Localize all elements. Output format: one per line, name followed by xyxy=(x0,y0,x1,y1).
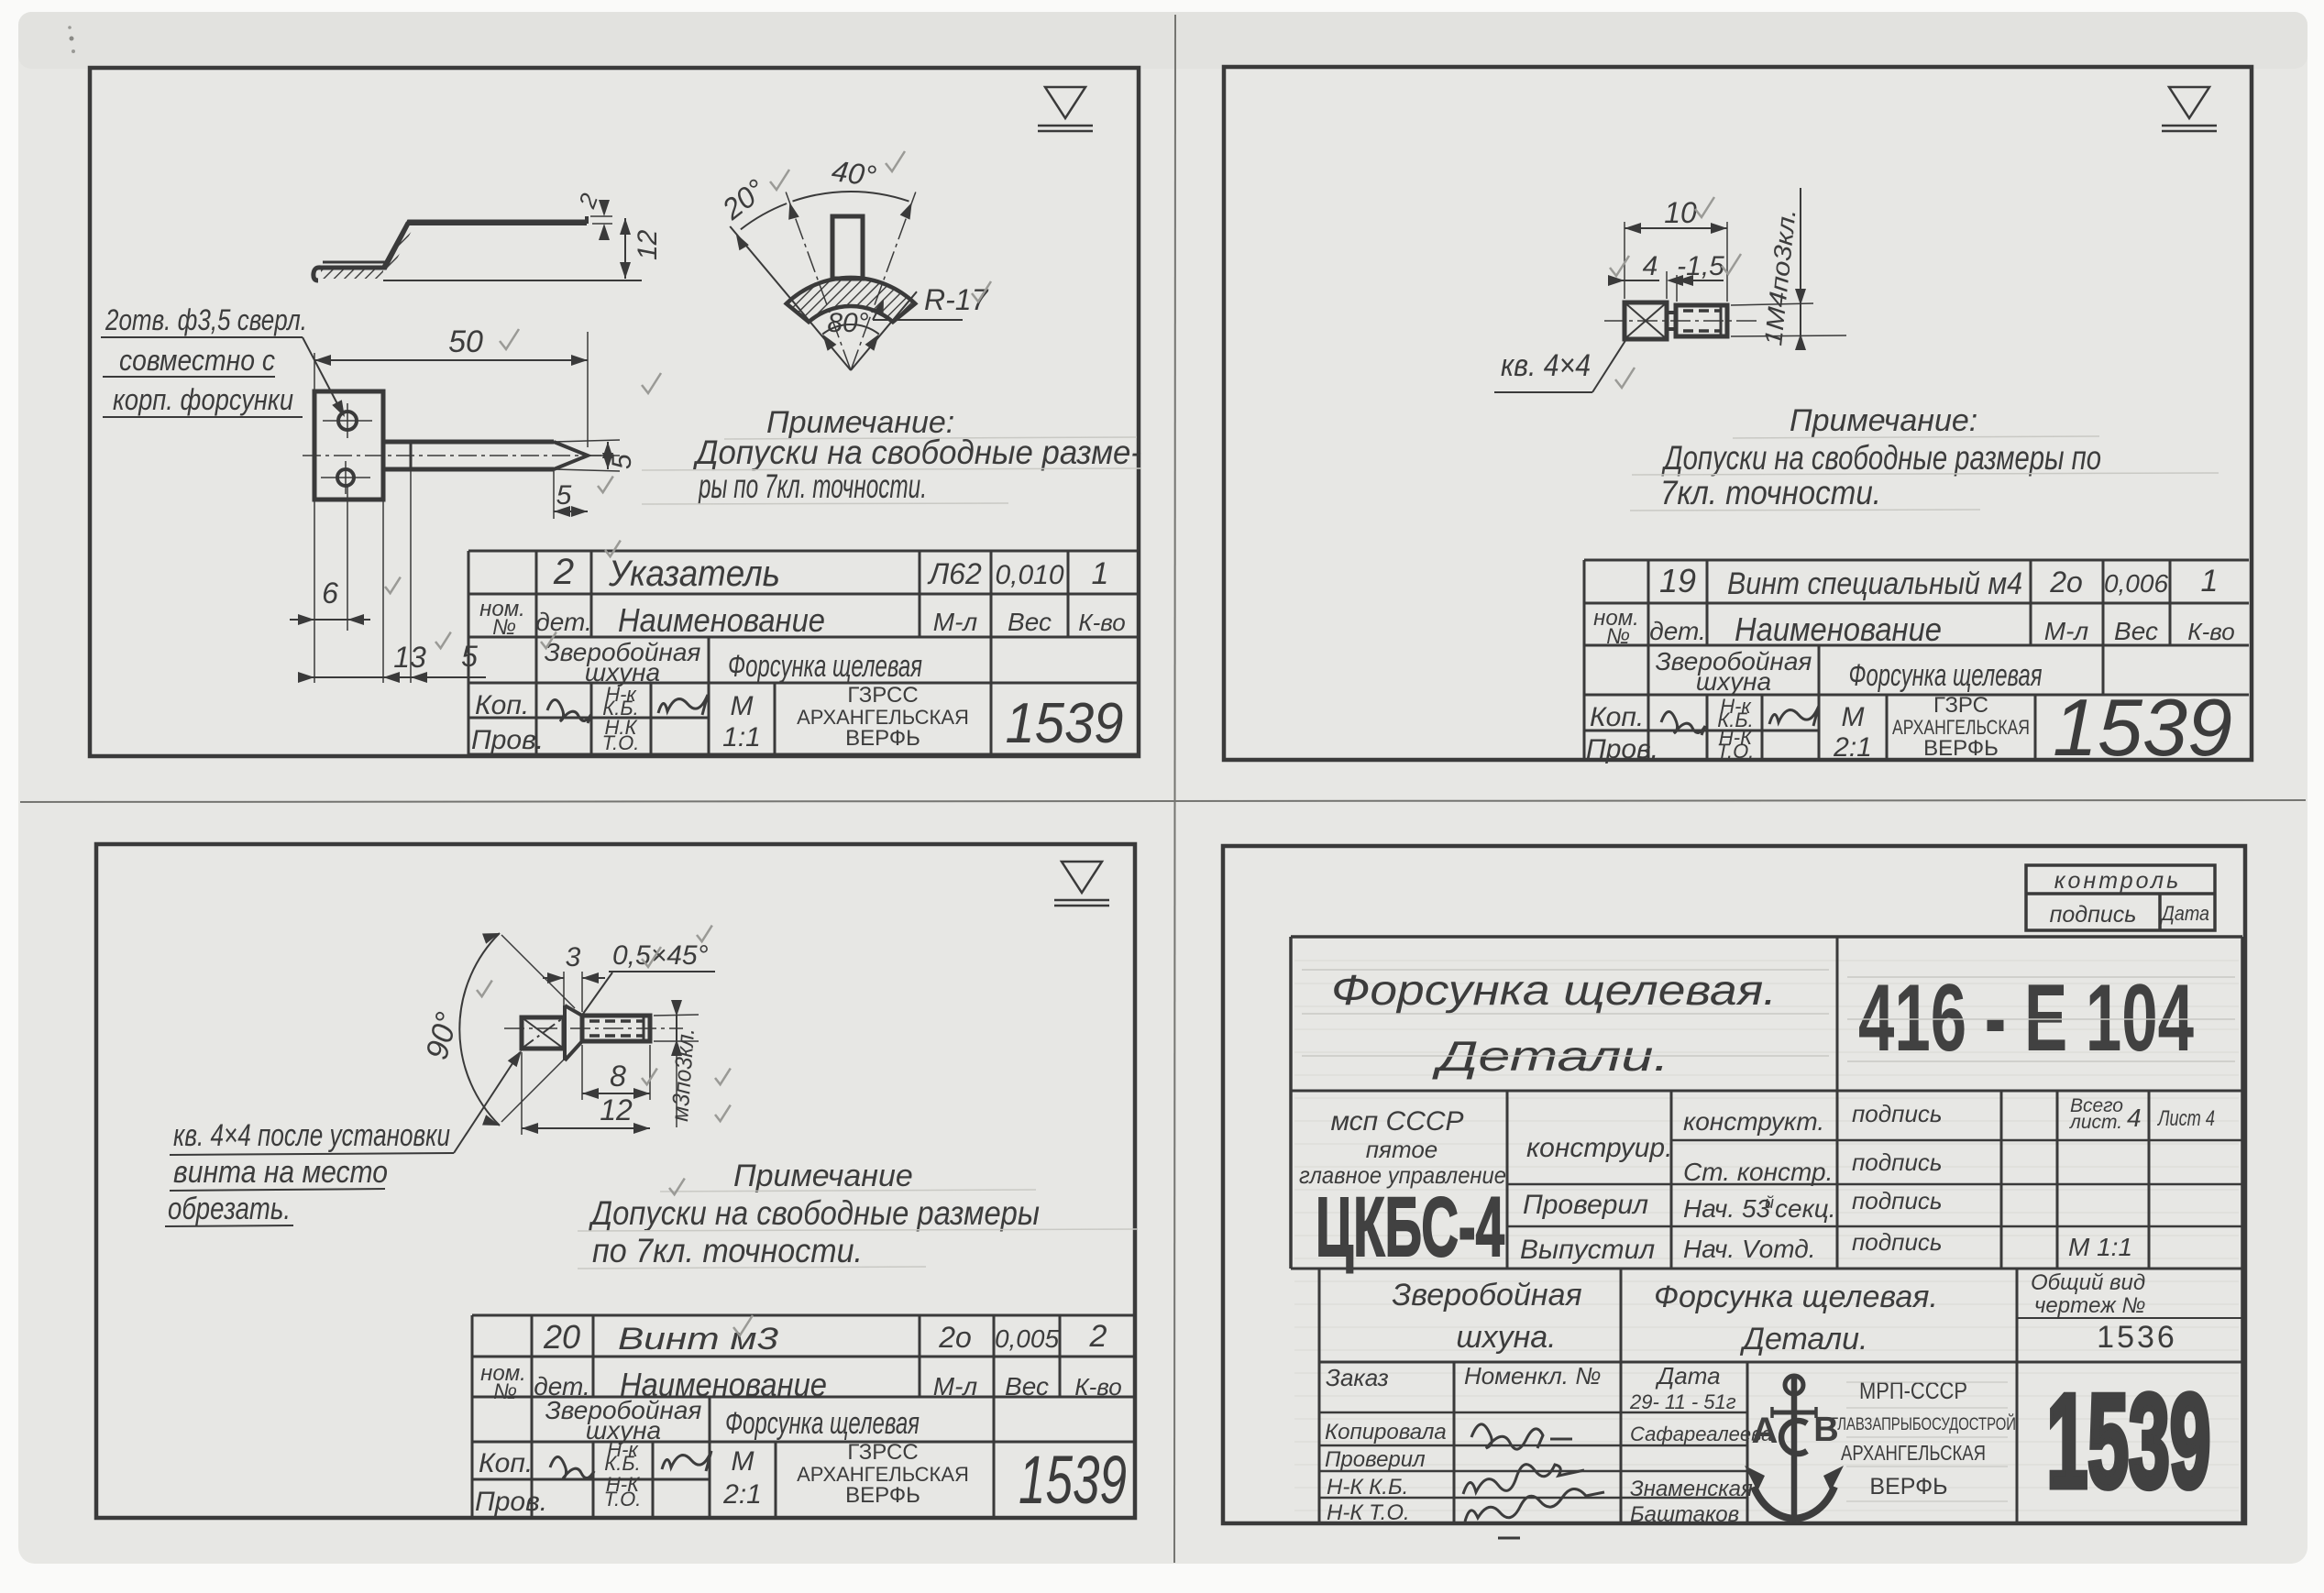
svg-text:секц.: секц. xyxy=(1775,1194,1836,1223)
svg-text:К-во: К-во xyxy=(2187,618,2234,645)
svg-text:2о: 2о xyxy=(938,1321,972,1354)
svg-text:Допуски на свободные размеры: Допуски на свободные размеры xyxy=(588,1194,1040,1232)
svg-text:Нач. Vотд.: Нач. Vотд. xyxy=(1683,1235,1815,1263)
svg-text:Нач. 53: Нач. 53 xyxy=(1683,1194,1771,1223)
svg-text:Знаменская: Знаменская xyxy=(1630,1477,1753,1501)
svg-text:ГЗРСС: ГЗРСС xyxy=(847,1440,918,1465)
svg-text:й: й xyxy=(1765,1193,1774,1212)
svg-text:Зверобойная: Зверобойная xyxy=(1392,1278,1581,1313)
svg-text:Винт м3: Винт м3 xyxy=(618,1322,778,1357)
svg-text:Н-К Т.О.: Н-К Т.О. xyxy=(1327,1500,1410,1525)
svg-text:Т.О.: Т.О. xyxy=(602,731,640,754)
svg-text:4: 4 xyxy=(2127,1104,2142,1132)
svg-text:1539: 1539 xyxy=(2053,682,2232,773)
svg-text:№: № xyxy=(493,1379,517,1404)
svg-text:1539: 1539 xyxy=(1006,692,1124,755)
svg-text:М: М xyxy=(732,1446,754,1477)
svg-text:Форсунка щелевая: Форсунка щелевая xyxy=(728,649,922,684)
svg-text:конструкт.: конструкт. xyxy=(1683,1107,1824,1136)
svg-text:7кл. точности.: 7кл. точности. xyxy=(1660,474,1881,511)
svg-text:подпись: подпись xyxy=(1852,1148,1943,1176)
svg-text:Форсунка щелевая: Форсунка щелевая xyxy=(1849,658,2043,693)
svg-text:пятое: пятое xyxy=(1366,1136,1437,1163)
svg-text:Т.О.: Т.О. xyxy=(604,1488,642,1511)
svg-text:1539: 1539 xyxy=(1019,1442,1127,1518)
svg-text:4: 4 xyxy=(1643,251,1658,281)
svg-text:ВЕРФЬ: ВЕРФЬ xyxy=(1869,1474,1947,1500)
svg-text:дет.: дет. xyxy=(1649,617,1706,645)
svg-text:кв. 4×4: кв. 4×4 xyxy=(1501,348,1591,383)
svg-text:416 - Е 104: 416 - Е 104 xyxy=(1858,965,2194,1071)
svg-text:МРП-СССР: МРП-СССР xyxy=(1859,1377,1967,1404)
svg-text:контроль: контроль xyxy=(2054,868,2182,894)
svg-text:№: № xyxy=(1606,624,1630,649)
svg-text:подпись: подпись xyxy=(1852,1228,1943,1256)
svg-text:М-л: М-л xyxy=(933,1372,978,1401)
svg-text:конструир.: конструир. xyxy=(1526,1133,1672,1163)
svg-text:Вес: Вес xyxy=(1008,608,1052,636)
svg-text:0,006: 0,006 xyxy=(2104,569,2168,598)
svg-text:Форсунка щелевая.: Форсунка щелевая. xyxy=(1331,966,1777,1014)
svg-text:0,5×45°: 0,5×45° xyxy=(612,940,709,971)
svg-text:Общий вид: Общий вид xyxy=(2031,1270,2145,1295)
svg-text:1:1: 1:1 xyxy=(722,722,761,753)
svg-text:подпись: подпись xyxy=(2050,902,2137,928)
svg-text:Коп.: Коп. xyxy=(1590,702,1644,732)
svg-text:ВЕРФЬ: ВЕРФЬ xyxy=(845,1483,920,1508)
svg-text:Дата: Дата xyxy=(1655,1362,1721,1390)
svg-text:Баштаков: Баштаков xyxy=(1630,1502,1739,1527)
svg-text:Н-К К.Б.: Н-К К.Б. xyxy=(1327,1475,1408,1500)
svg-text:1: 1 xyxy=(2201,564,2219,599)
svg-text:ГЗРСС: ГЗРСС xyxy=(847,683,918,708)
svg-text:Т.О.: Т.О. xyxy=(1717,740,1755,763)
svg-text:Л62: Л62 xyxy=(927,557,982,590)
svg-text:А: А xyxy=(1752,1411,1779,1451)
svg-text:по 7кл. точности.: по 7кл. точности. xyxy=(592,1232,863,1269)
svg-text:ГЗРС: ГЗРС xyxy=(1933,693,1988,718)
svg-text:№: № xyxy=(492,615,516,640)
svg-text:Вес: Вес xyxy=(2114,617,2158,645)
svg-text:АРХАНГЕЛЬСКАЯ: АРХАНГЕЛЬСКАЯ xyxy=(1841,1441,1986,1465)
svg-text:Примечание: Примечание xyxy=(733,1159,913,1193)
svg-text:винта на место: винта на место xyxy=(173,1155,388,1190)
svg-text:0,005: 0,005 xyxy=(995,1324,1059,1353)
svg-text:Наименование: Наименование xyxy=(1735,610,1942,648)
svg-text:Копировала: Копировала xyxy=(1325,1420,1447,1445)
svg-text:2:1: 2:1 xyxy=(722,1479,762,1510)
svg-text:Лист 4: Лист 4 xyxy=(2156,1106,2215,1131)
svg-text:-1,5: -1,5 xyxy=(1677,251,1724,281)
svg-text:мсп СССР: мсп СССР xyxy=(1330,1106,1463,1137)
svg-text:К-во: К-во xyxy=(1074,1373,1121,1401)
svg-text:чертеж №: чертеж № xyxy=(2034,1293,2145,1318)
svg-text:Пров.: Пров. xyxy=(475,1487,547,1517)
svg-text:2: 2 xyxy=(553,552,574,592)
svg-text:80°: 80° xyxy=(827,308,868,338)
svg-text:Пров.: Пров. xyxy=(1586,734,1658,764)
svg-text:40°: 40° xyxy=(830,154,878,192)
svg-text:М: М xyxy=(1842,702,1865,732)
svg-text:5: 5 xyxy=(556,480,572,511)
svg-text:дет.: дет. xyxy=(535,608,592,636)
svg-text:Номенкл. №: Номенкл. № xyxy=(1464,1362,1601,1390)
svg-text:ры по 7кл. точности.: ры по 7кл. точности. xyxy=(698,467,927,505)
svg-text:обрезать.: обрезать. xyxy=(168,1192,291,1226)
svg-text:К-во: К-во xyxy=(1078,609,1125,636)
svg-text:Заказ: Заказ xyxy=(1326,1364,1389,1391)
svg-text:совместно с: совместно с xyxy=(119,344,275,377)
svg-text:Допуски на свободные размеры: Допуски на свободные размеры по xyxy=(1661,439,2101,477)
svg-text:Коп.: Коп. xyxy=(475,690,529,720)
svg-text:шхуна: шхуна xyxy=(1696,667,1771,696)
svg-text:корп. форсунки: корп. форсунки xyxy=(113,383,293,416)
svg-text:кв. 4×4 после установки: кв. 4×4 после установки xyxy=(173,1118,450,1153)
svg-text:К.Б.: К.Б. xyxy=(604,1452,641,1475)
svg-text:50: 50 xyxy=(448,324,483,359)
svg-text:Вес: Вес xyxy=(1005,1372,1049,1401)
svg-text:Пров.: Пров. xyxy=(471,725,544,755)
svg-text:8: 8 xyxy=(610,1060,626,1093)
svg-text:2: 2 xyxy=(1089,1319,1107,1354)
svg-text:12: 12 xyxy=(600,1093,633,1126)
svg-text:Винт специальный м4: Винт специальный м4 xyxy=(1727,566,2022,601)
svg-text:Примечание:: Примечание: xyxy=(1790,403,1977,438)
svg-text:Форсунка щелевая.: Форсунка щелевая. xyxy=(1654,1280,1938,1314)
svg-text:Наименование: Наименование xyxy=(618,601,825,639)
svg-text:Коп.: Коп. xyxy=(479,1448,533,1478)
svg-text:М 1:1: М 1:1 xyxy=(2068,1233,2132,1261)
svg-text:1536: 1536 xyxy=(2097,1320,2177,1355)
svg-text:12: 12 xyxy=(633,229,663,260)
svg-text:2:1: 2:1 xyxy=(1833,732,1872,763)
svg-text:Выпустил: Выпустил xyxy=(1520,1235,1655,1265)
svg-text:19: 19 xyxy=(1659,562,1696,599)
svg-text:Дата: Дата xyxy=(2159,902,2209,925)
svg-text:3: 3 xyxy=(566,942,581,972)
svg-text:шхуна.: шхуна. xyxy=(1456,1320,1556,1355)
svg-text:М: М xyxy=(731,691,754,721)
svg-text:ГЛАВЗАПРЫБОСУДОСТРОЙ: ГЛАВЗАПРЫБОСУДОСТРОЙ xyxy=(1831,1414,2016,1434)
svg-text:Ст. констр.: Ст. констр. xyxy=(1683,1158,1833,1186)
svg-text:Проверил: Проверил xyxy=(1325,1447,1426,1472)
svg-text:1: 1 xyxy=(1092,556,1109,591)
svg-text:13: 13 xyxy=(393,641,426,674)
svg-text:1539: 1539 xyxy=(2047,1367,2211,1515)
svg-text:ЦКБС-4: ЦКБС-4 xyxy=(1316,1181,1504,1274)
svg-text:10: 10 xyxy=(1664,196,1697,229)
svg-text:подпись: подпись xyxy=(1852,1100,1943,1127)
svg-text:2отв. ф3,5 сверл.: 2отв. ф3,5 сверл. xyxy=(105,303,307,336)
svg-text:5: 5 xyxy=(461,640,478,673)
svg-text:Проверил: Проверил xyxy=(1523,1190,1648,1220)
svg-text:6: 6 xyxy=(322,577,338,610)
svg-text:М-л: М-л xyxy=(2044,617,2089,645)
svg-text:ВЕРФЬ: ВЕРФЬ xyxy=(1923,736,1999,761)
svg-text:5: 5 xyxy=(607,454,637,469)
svg-text:Форсунка щелевая: Форсунка щелевая xyxy=(725,1406,920,1441)
svg-text:ВЕРФЬ: ВЕРФЬ xyxy=(845,726,920,751)
svg-text:Указатель: Указатель xyxy=(608,554,780,594)
svg-text:20: 20 xyxy=(543,1318,580,1356)
svg-text:М-л: М-л xyxy=(933,608,978,636)
svg-text:лист.: лист. xyxy=(2069,1112,2122,1133)
svg-text:2о: 2о xyxy=(2049,566,2083,599)
svg-text:0,010: 0,010 xyxy=(995,560,1063,590)
svg-text:29- 11 - 51г: 29- 11 - 51г xyxy=(1629,1390,1736,1413)
svg-text:Детали.: Детали. xyxy=(1739,1322,1867,1357)
svg-text:подпись: подпись xyxy=(1852,1187,1943,1214)
